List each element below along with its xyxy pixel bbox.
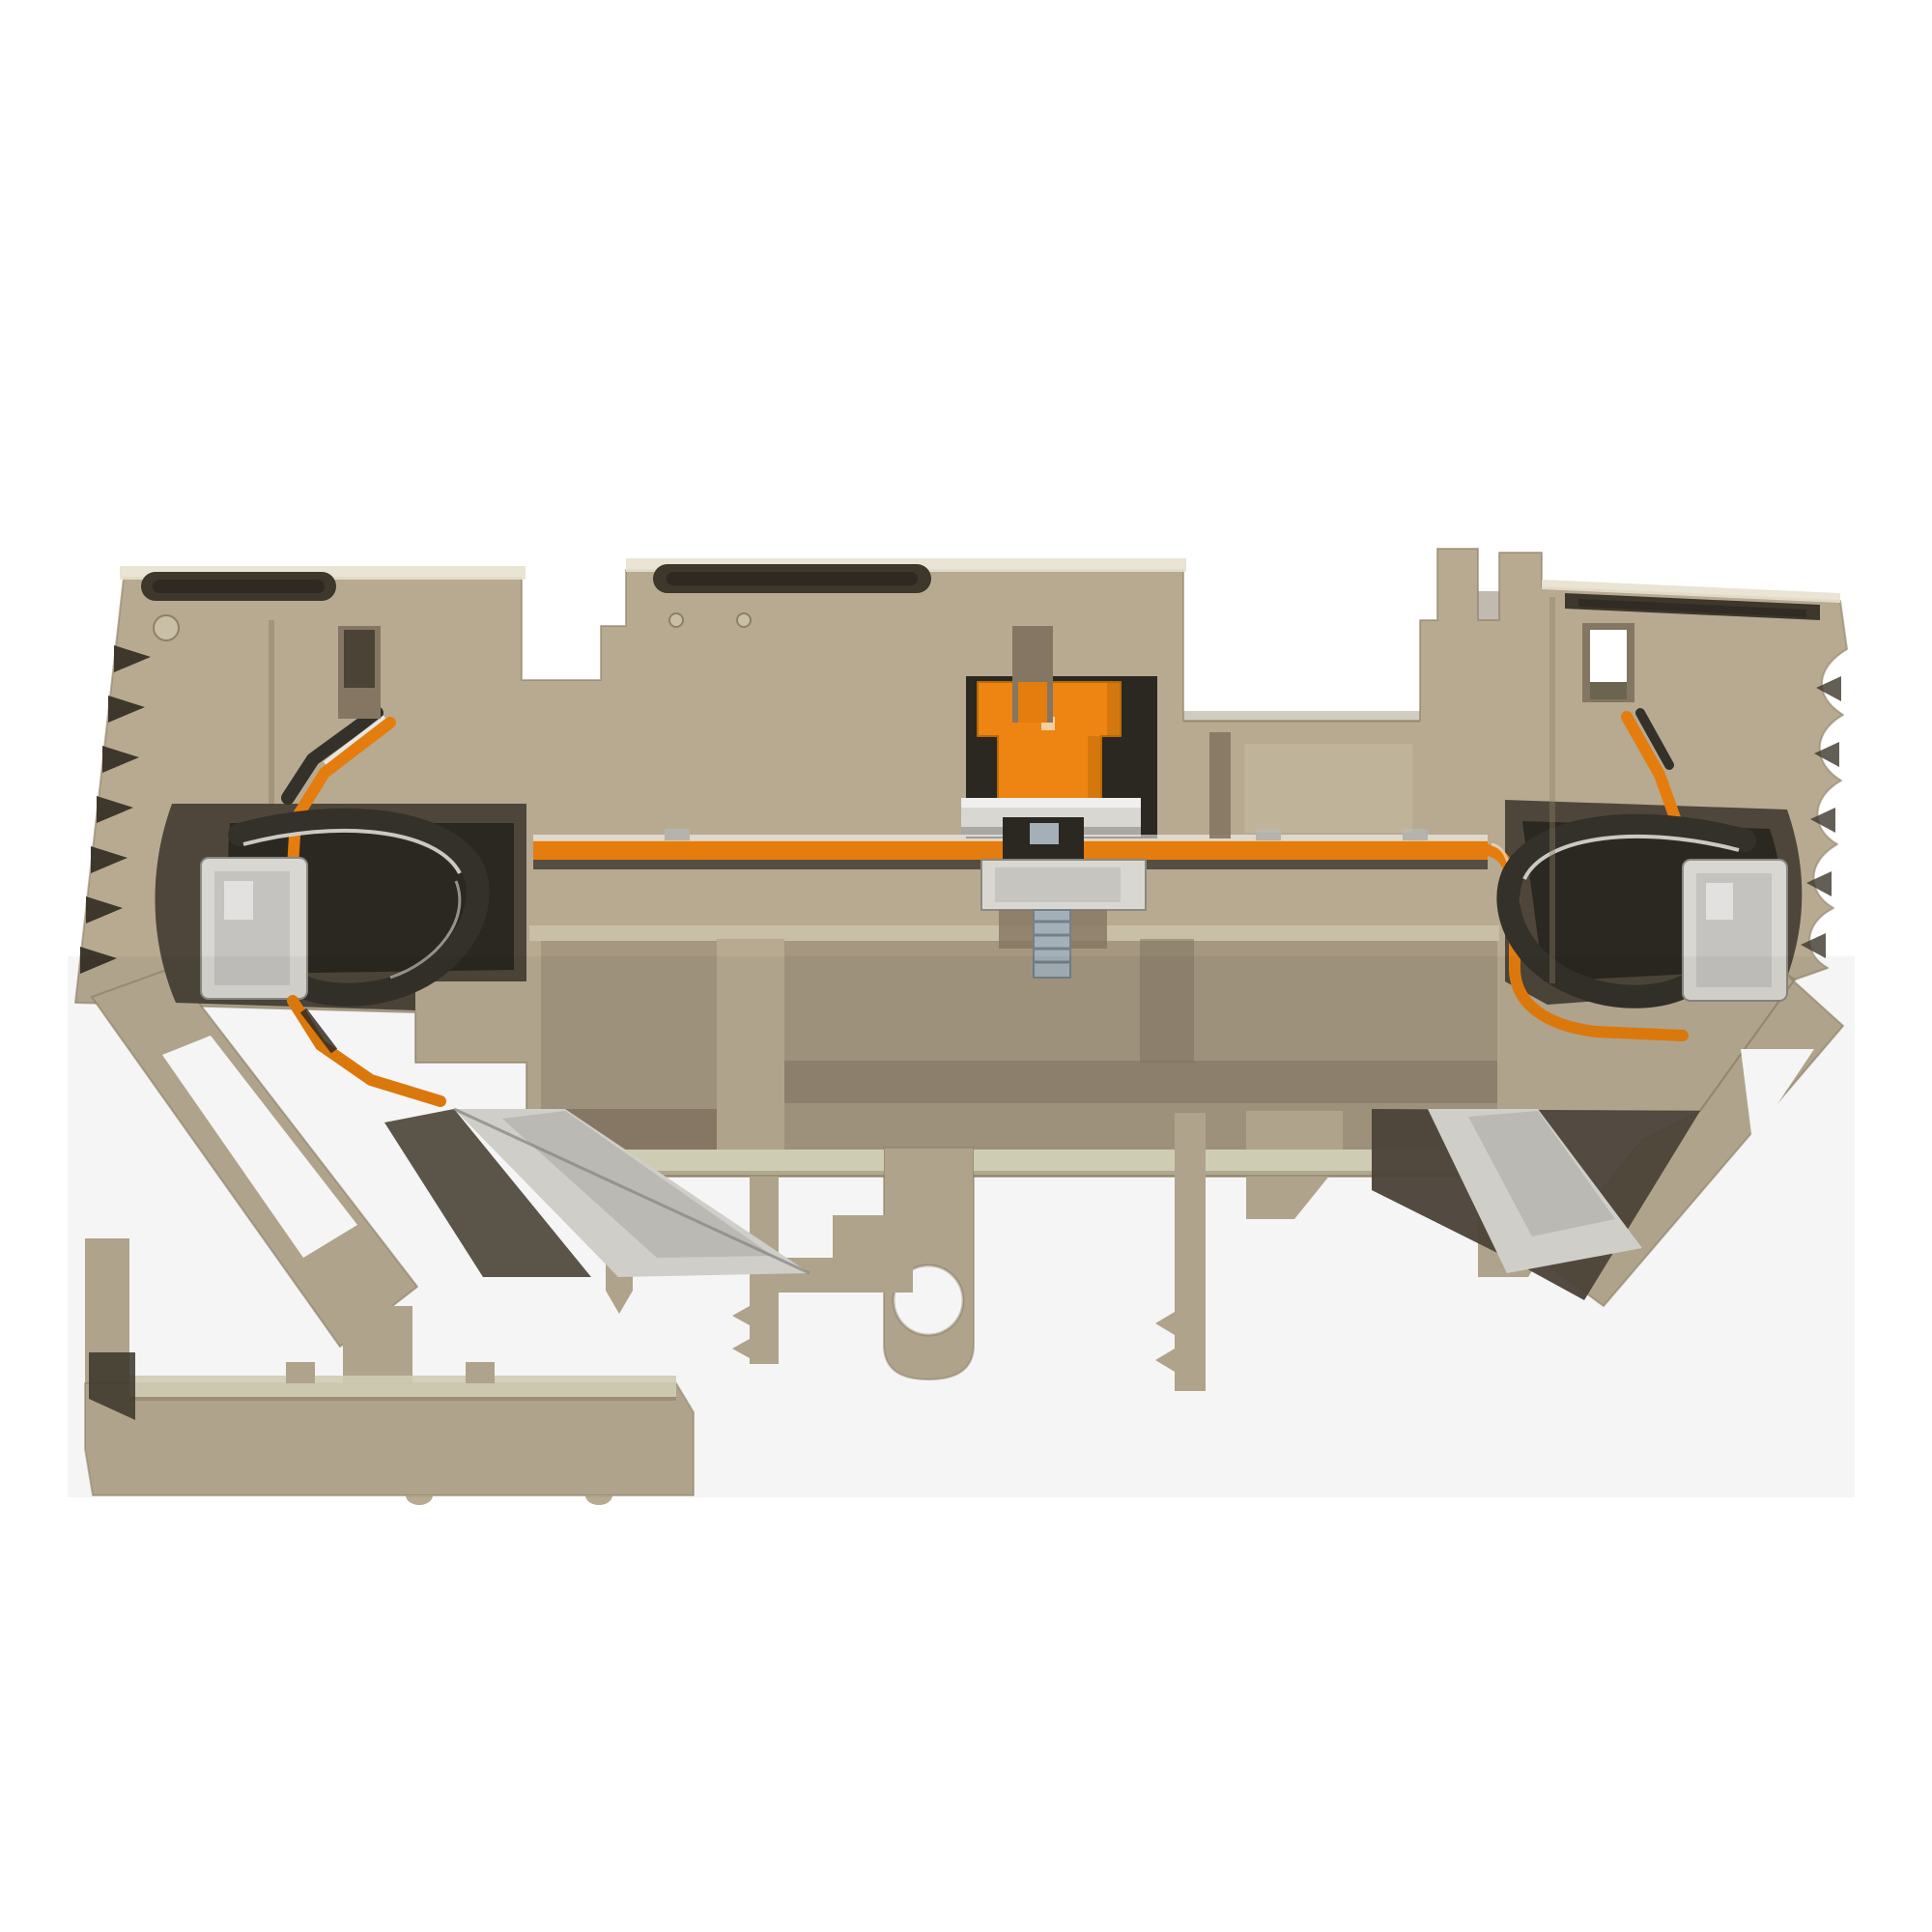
lower-depth-shade: [68, 956, 1855, 1497]
left-wire-entry-core: [153, 580, 325, 593]
left-face-slot-inner: [344, 630, 375, 688]
cross-connect-plate-bevel: [961, 798, 1141, 808]
center-wire-entry-core: [667, 572, 918, 585]
center-face-slot-conductor: [1018, 682, 1047, 723]
prong-gap-shade: [1478, 591, 1499, 620]
busbar-highlight-left: [533, 835, 1003, 841]
midright-slot: [1209, 732, 1231, 838]
right-contact-spec: [1706, 883, 1733, 920]
notch-floor-shade: [1183, 711, 1420, 723]
right-window-floor: [1590, 682, 1627, 699]
terminal-block-illustration: [0, 0, 1932, 1932]
screw-stem-nub: [1030, 823, 1059, 844]
busbar-shadow-left: [533, 860, 1003, 869]
left-contact-spec: [224, 881, 253, 920]
clamp-block-lower-texture: [995, 867, 1121, 902]
busbar-left-segment: [533, 840, 1003, 860]
right-window: [1590, 630, 1627, 682]
left-face-dimple: [154, 615, 179, 640]
terminal-block: [68, 549, 1855, 1505]
midright-panel: [1244, 744, 1412, 833]
right-face-groove: [1549, 597, 1555, 983]
left-face-groove: [269, 620, 274, 804]
busbar-right-segment: [1084, 840, 1488, 860]
product-photo: [0, 0, 1932, 1932]
